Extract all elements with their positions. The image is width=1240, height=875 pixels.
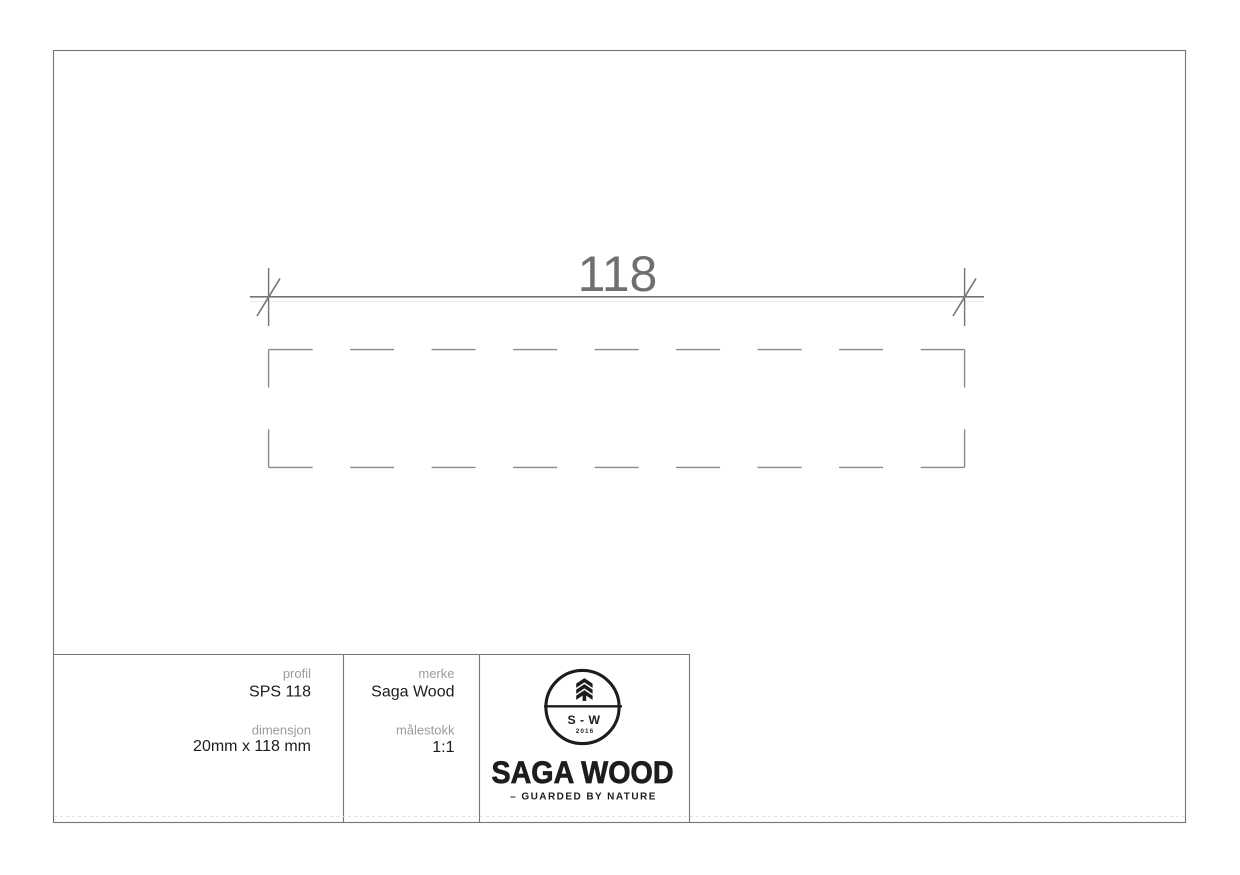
svg-text:SAGA WOOD: SAGA WOOD bbox=[491, 756, 673, 791]
svg-text:merke: merke bbox=[418, 666, 454, 681]
svg-text:2016: 2016 bbox=[576, 728, 595, 735]
svg-text:118: 118 bbox=[578, 246, 658, 302]
svg-text:1:1: 1:1 bbox=[432, 739, 454, 756]
svg-text:– GUARDED BY NATURE: – GUARDED BY NATURE bbox=[510, 791, 657, 802]
svg-text:profil: profil bbox=[283, 666, 311, 681]
svg-text:20mm x 118 mm: 20mm x 118 mm bbox=[193, 738, 311, 755]
svg-text:dimensjon: dimensjon bbox=[252, 722, 311, 737]
svg-text:S - W: S - W bbox=[568, 713, 601, 727]
svg-text:Saga Wood: Saga Wood bbox=[371, 684, 454, 701]
svg-text:SPS 118: SPS 118 bbox=[249, 684, 311, 701]
svg-text:målestokk: målestokk bbox=[396, 723, 455, 738]
